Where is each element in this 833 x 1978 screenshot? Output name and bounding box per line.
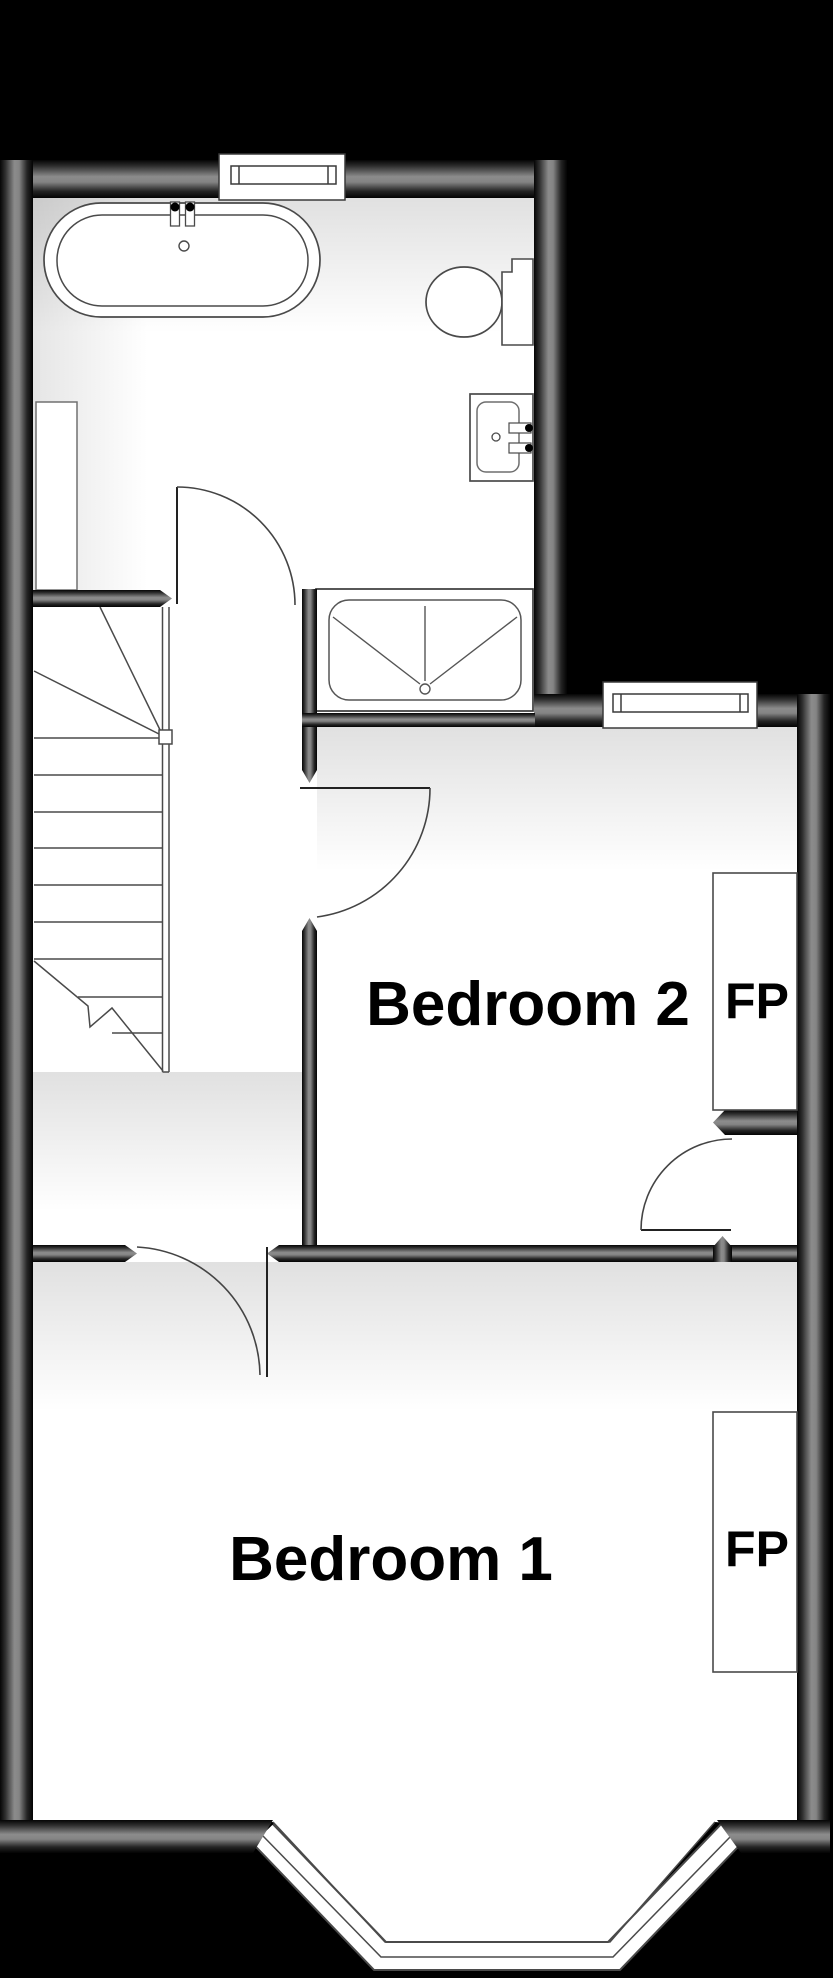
- wall-shower-bottom: [302, 713, 535, 727]
- sink-drain-icon: [492, 433, 500, 441]
- sink-counter: [470, 394, 533, 481]
- bathtub-outer: [44, 203, 320, 317]
- fireplace1-label: FP: [725, 1521, 789, 1577]
- bedroom2-label: Bedroom 2: [366, 970, 690, 1039]
- floor-plan-image: FP FP Bedroom 2 Bedroom 1: [0, 0, 833, 1978]
- bedroom2-shading: [317, 727, 797, 872]
- wall-right-upper: [534, 160, 567, 727]
- wall-landing-bedroom2: [302, 918, 317, 1262]
- toilet-cistern: [502, 259, 533, 345]
- bedroom2-window-glass: [613, 694, 748, 712]
- fireplace-bedroom2: FP: [713, 873, 797, 1110]
- wall-right: [797, 694, 830, 1853]
- wall-shower-left: [302, 589, 317, 783]
- floor-plan-page: FP FP Bedroom 2 Bedroom 1: [0, 0, 833, 1978]
- radiator: [36, 402, 77, 590]
- shower-tray: [316, 589, 533, 711]
- stair-newel-post: [159, 730, 172, 744]
- bathtub-drain-icon: [179, 241, 189, 251]
- bathtub: [44, 202, 320, 317]
- shower-drain-icon: [420, 684, 430, 694]
- bathtub-tap-dot: [171, 203, 180, 212]
- sink-tap-dot: [525, 444, 533, 452]
- bedroom1-shading: [33, 1262, 797, 1412]
- toilet-bowl: [426, 267, 502, 337]
- wall-bottom-left: [0, 1820, 273, 1853]
- wall-bathroom-stairs: [33, 590, 172, 607]
- bathtub-tap-dot: [186, 203, 195, 212]
- bathroom-window-glass: [231, 166, 336, 184]
- bedroom2-window: [603, 682, 757, 728]
- bathroom-window: [219, 154, 345, 200]
- sink-tap-dot: [525, 424, 533, 432]
- wall-left: [0, 160, 33, 1853]
- sink: [470, 394, 533, 481]
- fireplace-bedroom1: FP: [713, 1412, 797, 1672]
- wall-fireplace2-stub: [713, 1110, 797, 1135]
- landing-shading: [33, 1072, 302, 1212]
- fireplace2-label: FP: [725, 973, 789, 1029]
- bedroom1-label: Bedroom 1: [229, 1525, 553, 1594]
- wall-bedroom1-top-left: [33, 1245, 137, 1262]
